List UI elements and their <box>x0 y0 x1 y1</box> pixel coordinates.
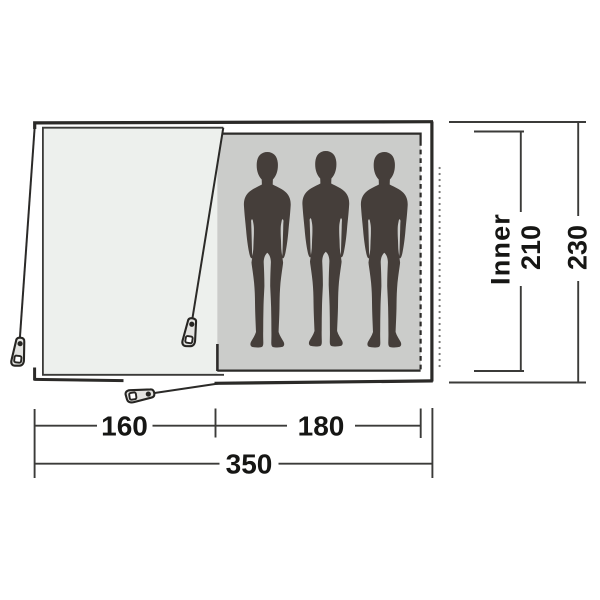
svg-text:Inner: Inner <box>486 213 516 285</box>
svg-text:230: 230 <box>563 225 593 270</box>
svg-text:350: 350 <box>226 448 273 479</box>
svg-text:180: 180 <box>298 410 345 441</box>
svg-text:160: 160 <box>101 410 148 441</box>
svg-text:210: 210 <box>516 225 546 270</box>
